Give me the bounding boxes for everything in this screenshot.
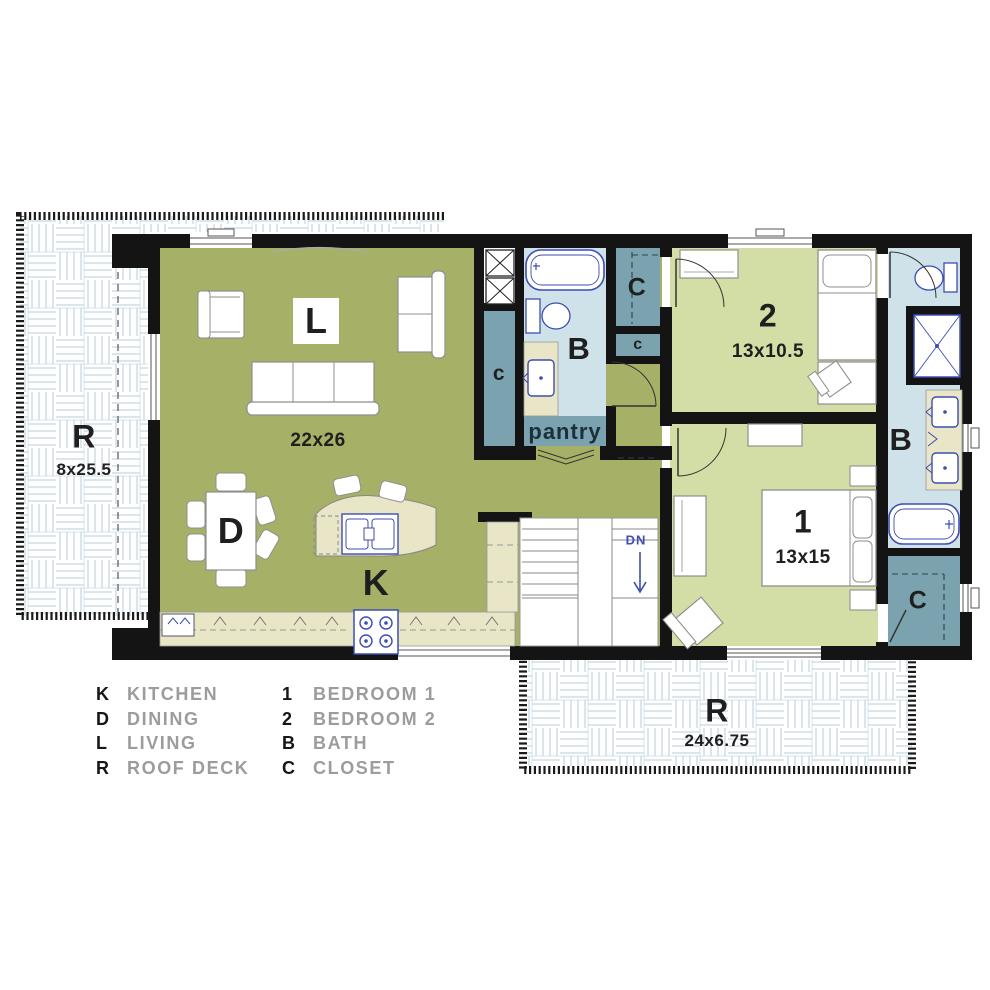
loveseat bbox=[398, 271, 445, 358]
sofa bbox=[247, 362, 379, 415]
window-closet-right bbox=[960, 584, 972, 612]
bath-right-label: B bbox=[890, 422, 913, 458]
legend-row: D DINING bbox=[96, 707, 249, 732]
closet-top-label: C bbox=[628, 274, 647, 303]
bedroom2-dim: 13x10.5 bbox=[732, 341, 804, 363]
toilet-right bbox=[915, 263, 957, 292]
legend-key: 1 bbox=[282, 682, 313, 707]
floor-plan-page: L D K 22x26 R 8x25.5 R 24x6.75 2 13x10.5… bbox=[0, 0, 990, 990]
stairs-dn-label: DN bbox=[626, 533, 647, 548]
armchair bbox=[198, 291, 244, 338]
pantry-label: pantry bbox=[528, 419, 601, 445]
kitchen-appliance bbox=[162, 614, 194, 636]
bed-bedroom2 bbox=[818, 250, 876, 360]
legend-key: K bbox=[96, 682, 127, 707]
legend-label: BEDROOM 1 bbox=[313, 682, 436, 707]
legend-row: K KITCHEN bbox=[96, 682, 249, 707]
legend-key: D bbox=[96, 707, 127, 732]
window-kitchen-bottom bbox=[398, 646, 510, 660]
legend-key: 2 bbox=[282, 707, 313, 732]
shower bbox=[906, 306, 962, 385]
vanity-middle bbox=[523, 342, 558, 416]
bedroom1-label: 1 bbox=[794, 504, 812, 541]
roof-deck-left-dim: 8x25.5 bbox=[57, 460, 112, 480]
living-label: L bbox=[305, 300, 327, 342]
closet-bedroom1-label: C bbox=[909, 587, 928, 616]
bathtub-middle bbox=[526, 250, 604, 290]
legend-key: C bbox=[282, 756, 313, 781]
living-label-box: L bbox=[293, 298, 339, 344]
kitchen-island bbox=[314, 496, 436, 557]
bathtub-right bbox=[889, 504, 959, 544]
roof-deck-bottom-dim: 24x6.75 bbox=[685, 731, 750, 751]
legend-key: R bbox=[96, 756, 127, 781]
living-dim: 22x26 bbox=[290, 430, 345, 452]
bed-bedroom1 bbox=[762, 490, 876, 586]
legend-row: B BATH bbox=[282, 731, 436, 756]
roof-deck-left-label: R bbox=[72, 419, 96, 456]
legend-label: KITCHEN bbox=[127, 682, 218, 707]
legend-key: B bbox=[282, 731, 313, 756]
closet-hall-label: c bbox=[493, 362, 505, 386]
roof-deck-bottom-label: R bbox=[705, 693, 729, 730]
bedroom1-dim: 13x15 bbox=[775, 547, 830, 569]
dresser-top-bedroom1 bbox=[748, 424, 802, 446]
floor-plan-drawing bbox=[0, 0, 990, 990]
legend-row: 1 BEDROOM 1 bbox=[282, 682, 436, 707]
legend-row: 2 BEDROOM 2 bbox=[282, 707, 436, 732]
bath-middle-label: B bbox=[568, 331, 591, 367]
legend-row: C CLOSET bbox=[282, 756, 436, 781]
vanity-right bbox=[926, 390, 962, 490]
legend-row: L LIVING bbox=[96, 731, 249, 756]
legend-right: 1 BEDROOM 1 2 BEDROOM 2 B BATH C CLOSET bbox=[282, 682, 436, 780]
dresser-bedroom2 bbox=[680, 250, 738, 278]
legend-label: CLOSET bbox=[313, 756, 396, 781]
legend-label: DINING bbox=[127, 707, 200, 732]
legend-label: BATH bbox=[313, 731, 368, 756]
legend-row: R ROOF DECK bbox=[96, 756, 249, 781]
legend-left: K KITCHEN D DINING L LIVING R ROOF DECK bbox=[96, 682, 249, 780]
dresser-left-bedroom1 bbox=[674, 496, 706, 576]
stove bbox=[354, 610, 398, 654]
deck-door-living bbox=[148, 334, 160, 420]
dining-label: D bbox=[218, 510, 245, 552]
legend-label: BEDROOM 2 bbox=[313, 707, 436, 732]
bedroom2-label: 2 bbox=[759, 298, 777, 335]
legend-label: ROOF DECK bbox=[127, 756, 249, 781]
legend-label: LIVING bbox=[127, 731, 197, 756]
kitchen-label: K bbox=[363, 562, 390, 604]
closet-small-label: c bbox=[633, 336, 642, 354]
legend-key: L bbox=[96, 731, 127, 756]
